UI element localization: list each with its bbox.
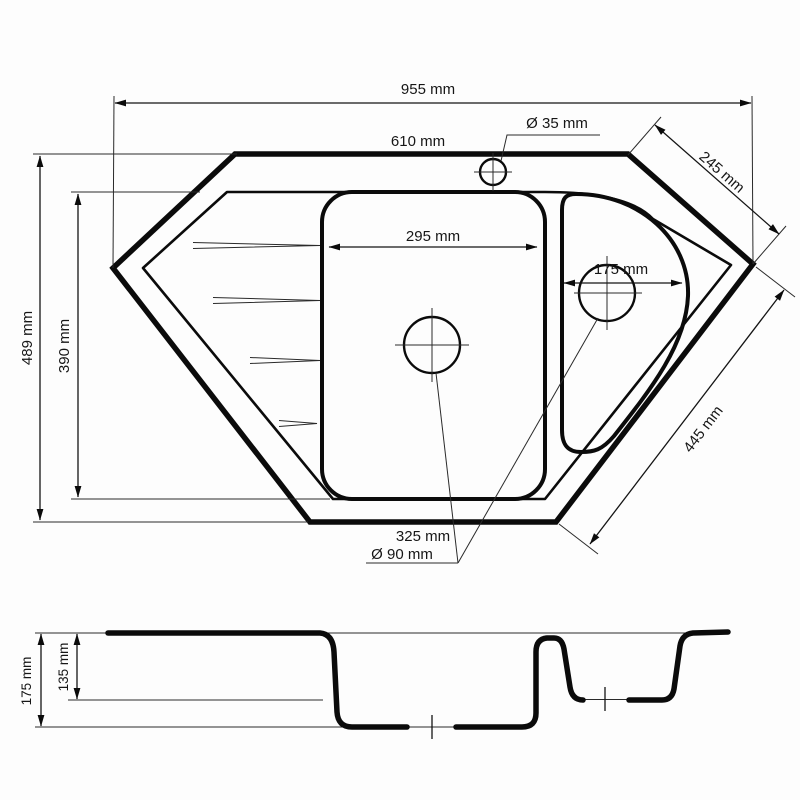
section-view: 175 mm 135 mm: [19, 632, 730, 739]
small-drain-hole: [458, 256, 642, 563]
dim-inner-depth: 390 mm: [56, 192, 330, 499]
sink-technical-drawing: Ø 35 mm 955 mm 610 mm: [0, 0, 800, 800]
dim-label-total-depth: 175 mm: [19, 657, 34, 706]
dim-label-bottom-edge: 325 mm: [396, 528, 450, 545]
dim-label-faucet-hole: Ø 35 mm: [526, 115, 588, 132]
dim-drain-diameter: Ø 90 mm: [366, 546, 458, 563]
dim-total-depth: 175 mm: [19, 634, 41, 726]
dim-right-bottom-edge: 445 mm: [559, 267, 795, 554]
sink-technical-drawing-page: Ø 35 mm 955 mm 610 mm: [0, 0, 800, 800]
section-profile-left: [108, 633, 407, 727]
dim-label-drain-diameter: Ø 90 mm: [371, 546, 433, 563]
dim-label-top-edge: 610 mm: [391, 133, 445, 150]
dim-label-right-top-edge: 245 mm: [696, 148, 748, 196]
groove: [279, 421, 317, 427]
dim-label-inner-depth: 390 mm: [56, 319, 73, 373]
faucet-hole: [474, 135, 600, 191]
dim-label-small-bowl-width: 175 mm: [594, 261, 648, 278]
dim-label-main-bowl-width: 295 mm: [406, 228, 460, 245]
dim-main-bowl-width: 295 mm: [329, 228, 537, 247]
dim-label-small-bowl-depth: 135 mm: [56, 643, 71, 692]
dim-label-overall-depth: 489 mm: [19, 311, 36, 365]
small-bowl: [562, 194, 688, 452]
section-profile-right: [629, 632, 728, 700]
groove: [213, 298, 320, 304]
dim-label-right-bottom-edge: 445 mm: [680, 403, 726, 456]
faucet-hole-leader: [501, 135, 600, 161]
dim-small-bowl-depth: 135 mm: [56, 634, 77, 699]
groove: [250, 358, 320, 364]
section-profile-middle: [456, 638, 583, 727]
top-view: Ø 35 mm 955 mm 610 mm: [19, 81, 795, 563]
small-drain-leader: [458, 318, 598, 563]
groove: [193, 243, 320, 249]
dim-right-top-edge: 245 mm: [628, 117, 786, 264]
dim-label-overall-width: 955 mm: [401, 81, 455, 98]
